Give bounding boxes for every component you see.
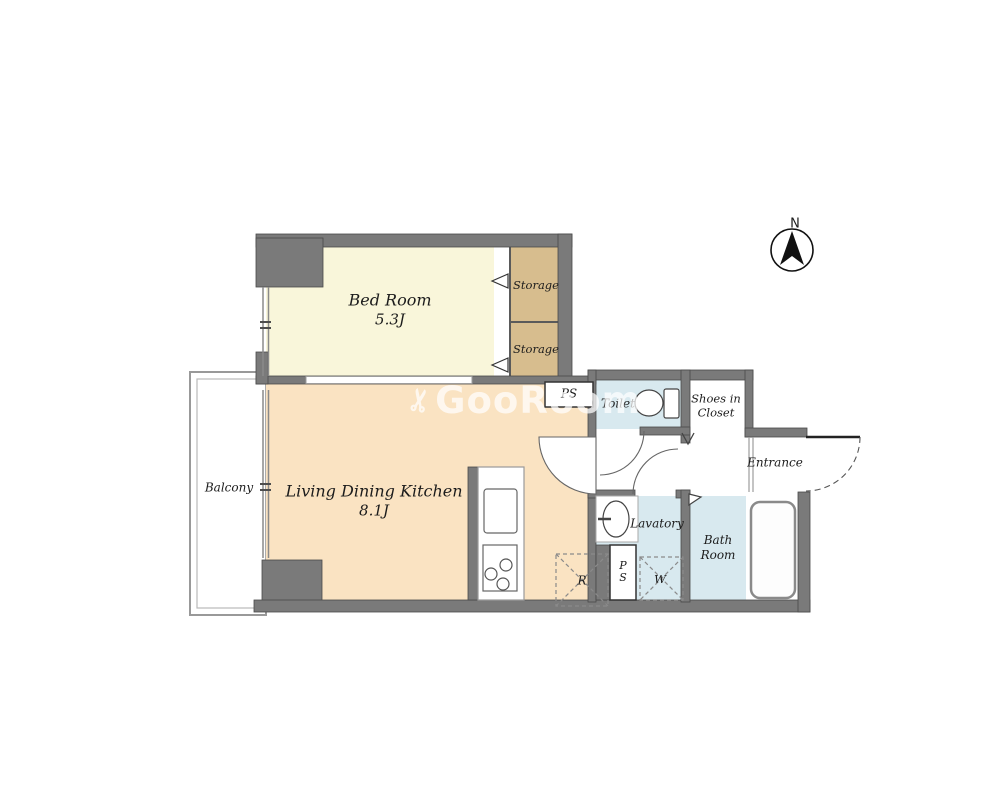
balcony-label: Balcony bbox=[205, 481, 253, 496]
storage-door-arrow bbox=[492, 274, 508, 288]
ldk-size: 8.1J bbox=[285, 502, 462, 521]
ldk-name: Living Dining Kitchen bbox=[285, 482, 462, 502]
compass-icon bbox=[771, 229, 813, 271]
watermark-text: GooRoom bbox=[435, 379, 641, 422]
bedroom-name: Bed Room bbox=[348, 291, 431, 311]
shoes-closet-label: Shoes in Closet bbox=[683, 392, 749, 421]
pipe-shaft-lower-label: PS bbox=[617, 560, 630, 584]
entrance-label: Entrance bbox=[747, 456, 803, 471]
ldk-label: Living Dining Kitchen 8.1J bbox=[285, 482, 462, 521]
bathtub bbox=[751, 502, 795, 598]
kitchen-counter bbox=[468, 467, 524, 600]
entrance-door-swing bbox=[806, 437, 860, 491]
floorplan-page: Bed Room 5.3J Living Dining Kitchen 8.1J… bbox=[0, 0, 999, 801]
stove bbox=[483, 545, 517, 591]
refrigerator-label: R bbox=[577, 574, 586, 589]
bedroom-size: 5.3J bbox=[348, 311, 431, 330]
kitchen-sink bbox=[484, 489, 517, 533]
bedroom-label: Bed Room 5.3J bbox=[348, 291, 431, 330]
storage-door-arrow bbox=[492, 358, 508, 372]
storage-upper-label: Storage bbox=[513, 278, 559, 292]
washer-label: W bbox=[654, 572, 666, 586]
storage-lower-label: Storage bbox=[513, 342, 559, 356]
toilet-fixture bbox=[635, 389, 679, 418]
north-label: N bbox=[790, 217, 800, 232]
watermark: ✂ GooRoom bbox=[408, 379, 641, 422]
lavatory-label: Lavatory bbox=[630, 517, 684, 532]
storage-area bbox=[510, 243, 560, 379]
bathroom-label: Bath Room bbox=[694, 533, 742, 563]
